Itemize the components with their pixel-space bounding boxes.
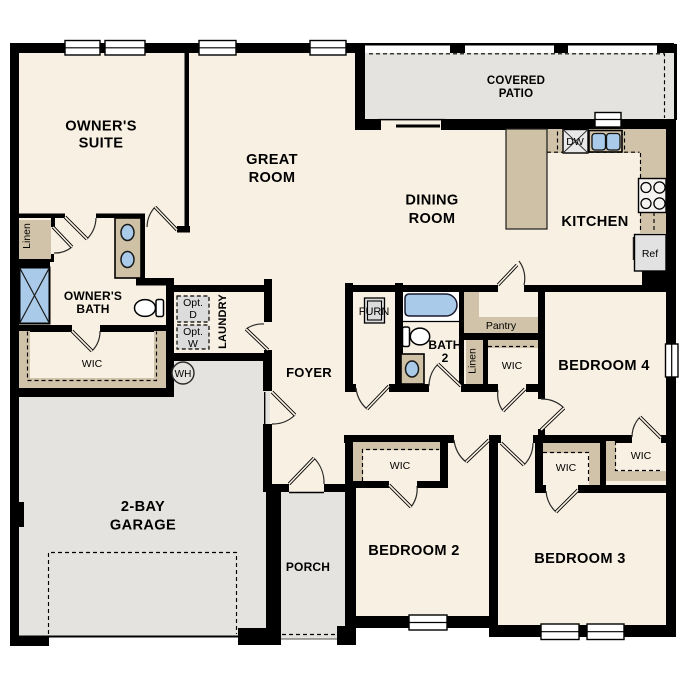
svg-text:BATH: BATH bbox=[76, 302, 109, 316]
svg-text:BEDROOM 3: BEDROOM 3 bbox=[534, 551, 626, 567]
svg-text:COVERED: COVERED bbox=[487, 75, 545, 87]
svg-text:LAUNDRY: LAUNDRY bbox=[217, 294, 229, 349]
svg-text:2-BAY: 2-BAY bbox=[121, 499, 165, 515]
svg-text:GREAT: GREAT bbox=[246, 152, 298, 168]
svg-text:WIC: WIC bbox=[631, 450, 652, 462]
svg-text:Linen: Linen bbox=[21, 223, 33, 249]
svg-text:SUITE: SUITE bbox=[79, 136, 124, 152]
svg-text:D: D bbox=[189, 309, 197, 321]
svg-text:Opt.: Opt. bbox=[183, 326, 203, 338]
svg-text:KITCHEN: KITCHEN bbox=[561, 214, 628, 230]
svg-text:ROOM: ROOM bbox=[409, 211, 456, 227]
svg-text:WH: WH bbox=[175, 369, 192, 380]
svg-text:2: 2 bbox=[442, 351, 449, 365]
svg-text:PORCH: PORCH bbox=[286, 560, 330, 574]
svg-text:GARAGE: GARAGE bbox=[110, 518, 176, 534]
svg-text:FOYER: FOYER bbox=[286, 365, 332, 380]
svg-text:WIC: WIC bbox=[556, 462, 577, 474]
svg-text:WIC: WIC bbox=[390, 460, 411, 472]
svg-text:DW: DW bbox=[566, 136, 584, 148]
svg-text:WIC: WIC bbox=[502, 360, 523, 372]
svg-text:Linen: Linen bbox=[467, 348, 479, 374]
svg-text:PATIO: PATIO bbox=[499, 88, 533, 100]
svg-text:BEDROOM 4: BEDROOM 4 bbox=[558, 358, 650, 374]
svg-text:BATH: BATH bbox=[428, 338, 461, 352]
svg-text:FURN: FURN bbox=[359, 306, 390, 318]
svg-text:Pantry: Pantry bbox=[486, 320, 517, 332]
svg-text:OWNER'S: OWNER'S bbox=[65, 119, 137, 135]
svg-text:WIC: WIC bbox=[82, 358, 103, 370]
svg-text:Ref: Ref bbox=[642, 248, 658, 260]
svg-text:W: W bbox=[188, 338, 198, 350]
svg-text:DINING: DINING bbox=[405, 193, 458, 209]
svg-text:BEDROOM 2: BEDROOM 2 bbox=[368, 543, 460, 559]
svg-text:Opt.: Opt. bbox=[183, 297, 203, 309]
svg-text:OWNER'S: OWNER'S bbox=[64, 289, 122, 303]
svg-text:ROOM: ROOM bbox=[249, 170, 296, 186]
